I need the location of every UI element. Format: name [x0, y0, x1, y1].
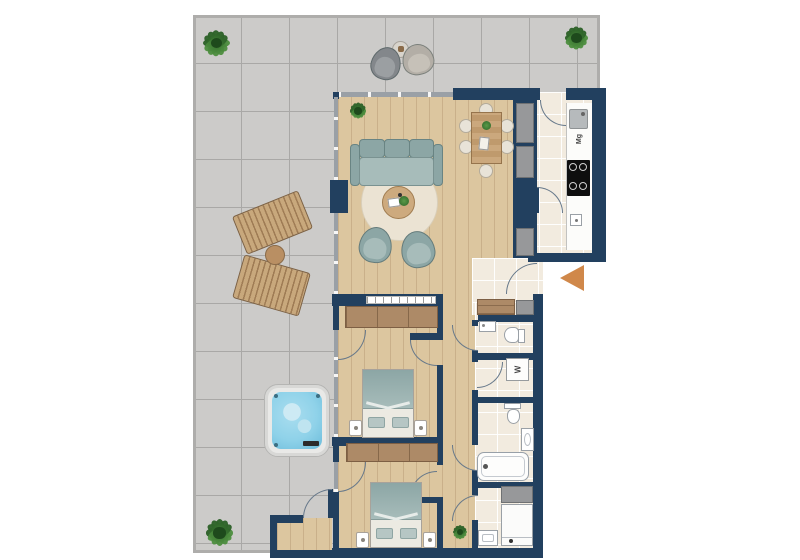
nightstand — [356, 532, 369, 548]
pillow — [392, 417, 409, 428]
pillow — [368, 417, 385, 428]
table-deco — [398, 193, 402, 197]
wall-south — [332, 548, 543, 558]
bedroom1-bed — [362, 369, 414, 438]
bedroom1-door-leaf — [410, 333, 437, 340]
table-deco — [398, 46, 404, 52]
dining-chair — [479, 164, 493, 178]
burner-icon — [579, 182, 587, 190]
bedroom2-bed — [370, 482, 422, 548]
armchair-seat — [362, 237, 387, 261]
wall-kitchen-bottom — [528, 253, 606, 262]
bathroom-toilet-bowl — [507, 409, 520, 424]
burner-icon — [579, 163, 587, 171]
floor-plan: Mg W — [0, 0, 800, 560]
lamp-icon — [361, 538, 365, 542]
wc-toilet-bowl — [504, 327, 519, 343]
terrace-plant-icon — [196, 512, 243, 555]
lamp-icon — [419, 426, 423, 430]
dining-chair — [500, 140, 514, 154]
parapet-top — [193, 15, 600, 18]
faucet-icon — [482, 324, 485, 327]
living-window-wall-1 — [334, 97, 338, 180]
wall-east — [533, 322, 543, 558]
sofa-armrest — [433, 144, 443, 186]
shower-handle-icon — [509, 539, 513, 543]
burner-icon — [569, 163, 577, 171]
living-window-wall-2 — [334, 213, 338, 294]
shower — [501, 504, 533, 546]
shower-room-sink — [478, 530, 498, 546]
kitchen-appliance-text: Mg — [576, 134, 583, 144]
hall-sideboard — [477, 299, 515, 315]
jacuzzi-jet-icon — [274, 394, 278, 398]
wall-nook-bottom — [270, 550, 335, 558]
wall-bedroom2-west-stub1 — [333, 443, 339, 462]
faucet-icon — [483, 464, 488, 469]
table-tray — [478, 137, 489, 151]
bedroom1-closet-shelf — [366, 296, 436, 304]
cooktop — [567, 160, 590, 196]
washing-machine: W — [506, 358, 529, 381]
terrace-plant-icon — [557, 20, 596, 57]
shower-door-line — [502, 537, 532, 538]
chair-seat — [373, 55, 398, 79]
lamp-icon — [428, 538, 432, 542]
indoor-plant-icon — [344, 97, 372, 125]
living-pillar — [330, 180, 348, 213]
wc-toilet-tank — [518, 329, 525, 343]
wc-sink — [479, 321, 496, 332]
wall-laundry-bath — [472, 397, 533, 403]
plant-center — [213, 527, 225, 538]
wall-kitchen-right — [592, 88, 606, 262]
kitchen-small-appliance — [570, 214, 582, 226]
wall-corridor-left-3 — [437, 497, 443, 548]
kitchen-tall-unit-1 — [516, 103, 534, 143]
coffee-table — [382, 186, 415, 219]
faucet-icon — [581, 112, 585, 116]
lounger-side-table — [265, 245, 285, 265]
basin — [524, 433, 531, 446]
jacuzzi — [264, 384, 330, 457]
terrace-plant-icon — [194, 23, 239, 64]
nightstand — [423, 532, 436, 548]
wall-nook-right — [333, 518, 339, 550]
kitchen-tall-unit-3 — [516, 228, 534, 256]
wall-bedroom2-west-stub2 — [333, 492, 339, 518]
nightstand — [414, 420, 427, 436]
chair-seat — [406, 51, 431, 74]
sofa-back-cushion — [409, 139, 434, 158]
bathroom-sink — [521, 428, 534, 451]
basin — [482, 534, 494, 542]
bedroom2-wardrobe — [346, 443, 438, 462]
pillow — [400, 528, 417, 539]
bedroom1-window-wall — [334, 360, 338, 437]
plant-center — [571, 33, 581, 43]
bathtub — [477, 452, 529, 481]
sofa — [350, 139, 443, 190]
armchair-seat — [405, 241, 431, 266]
hall-cabinet — [516, 300, 534, 315]
parapet-right — [597, 15, 600, 91]
jacuzzi-jet-icon — [274, 443, 278, 447]
table-plant-icon — [399, 196, 409, 206]
washing-machine-label: W — [513, 366, 522, 374]
knob-icon — [575, 219, 578, 222]
dining-table — [471, 112, 502, 164]
shower-room-cabinet — [501, 486, 533, 503]
lamp-icon — [354, 426, 358, 430]
wall-bedroom1-west-stub — [333, 294, 339, 330]
sofa-back-cushion — [359, 139, 385, 158]
kitchen-tall-unit-2 — [516, 146, 534, 178]
jacuzzi-jet-icon — [316, 394, 320, 398]
corridor-plant-icon — [448, 520, 472, 544]
dining-chair — [500, 119, 514, 133]
bedroom1-wardrobe — [345, 306, 438, 328]
burner-icon — [569, 182, 577, 190]
sofa-seat — [359, 157, 434, 186]
sofa-back-cushion — [384, 139, 410, 158]
entrance-arrow-icon — [560, 265, 584, 291]
kitchen-appliance-label: Mg — [570, 126, 588, 152]
jacuzzi-keypad — [303, 441, 319, 446]
plant-center — [354, 107, 361, 114]
pillow — [376, 528, 393, 539]
wall-nook-top — [270, 515, 303, 523]
table-plant-icon — [482, 121, 491, 130]
nightstand — [349, 420, 362, 436]
parapet-left — [193, 15, 196, 553]
